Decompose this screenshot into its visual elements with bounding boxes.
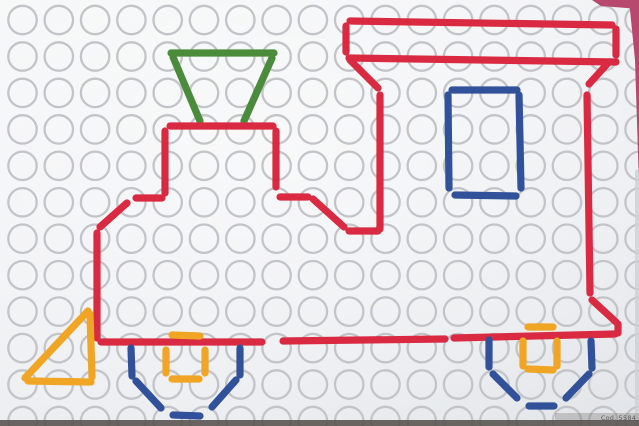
photo-bottom-shadow (0, 420, 639, 426)
product-code-label: Cod. 5584 (601, 414, 636, 422)
peg-holes-grid (8, 6, 639, 426)
pegboard-photo: Cod. 5584 (0, 0, 639, 426)
board-right-edge-shade (635, 170, 639, 426)
funnel-green-pieces (171, 53, 274, 121)
backdrop-right-strip (629, 0, 639, 185)
pegboard-svg (0, 0, 639, 426)
